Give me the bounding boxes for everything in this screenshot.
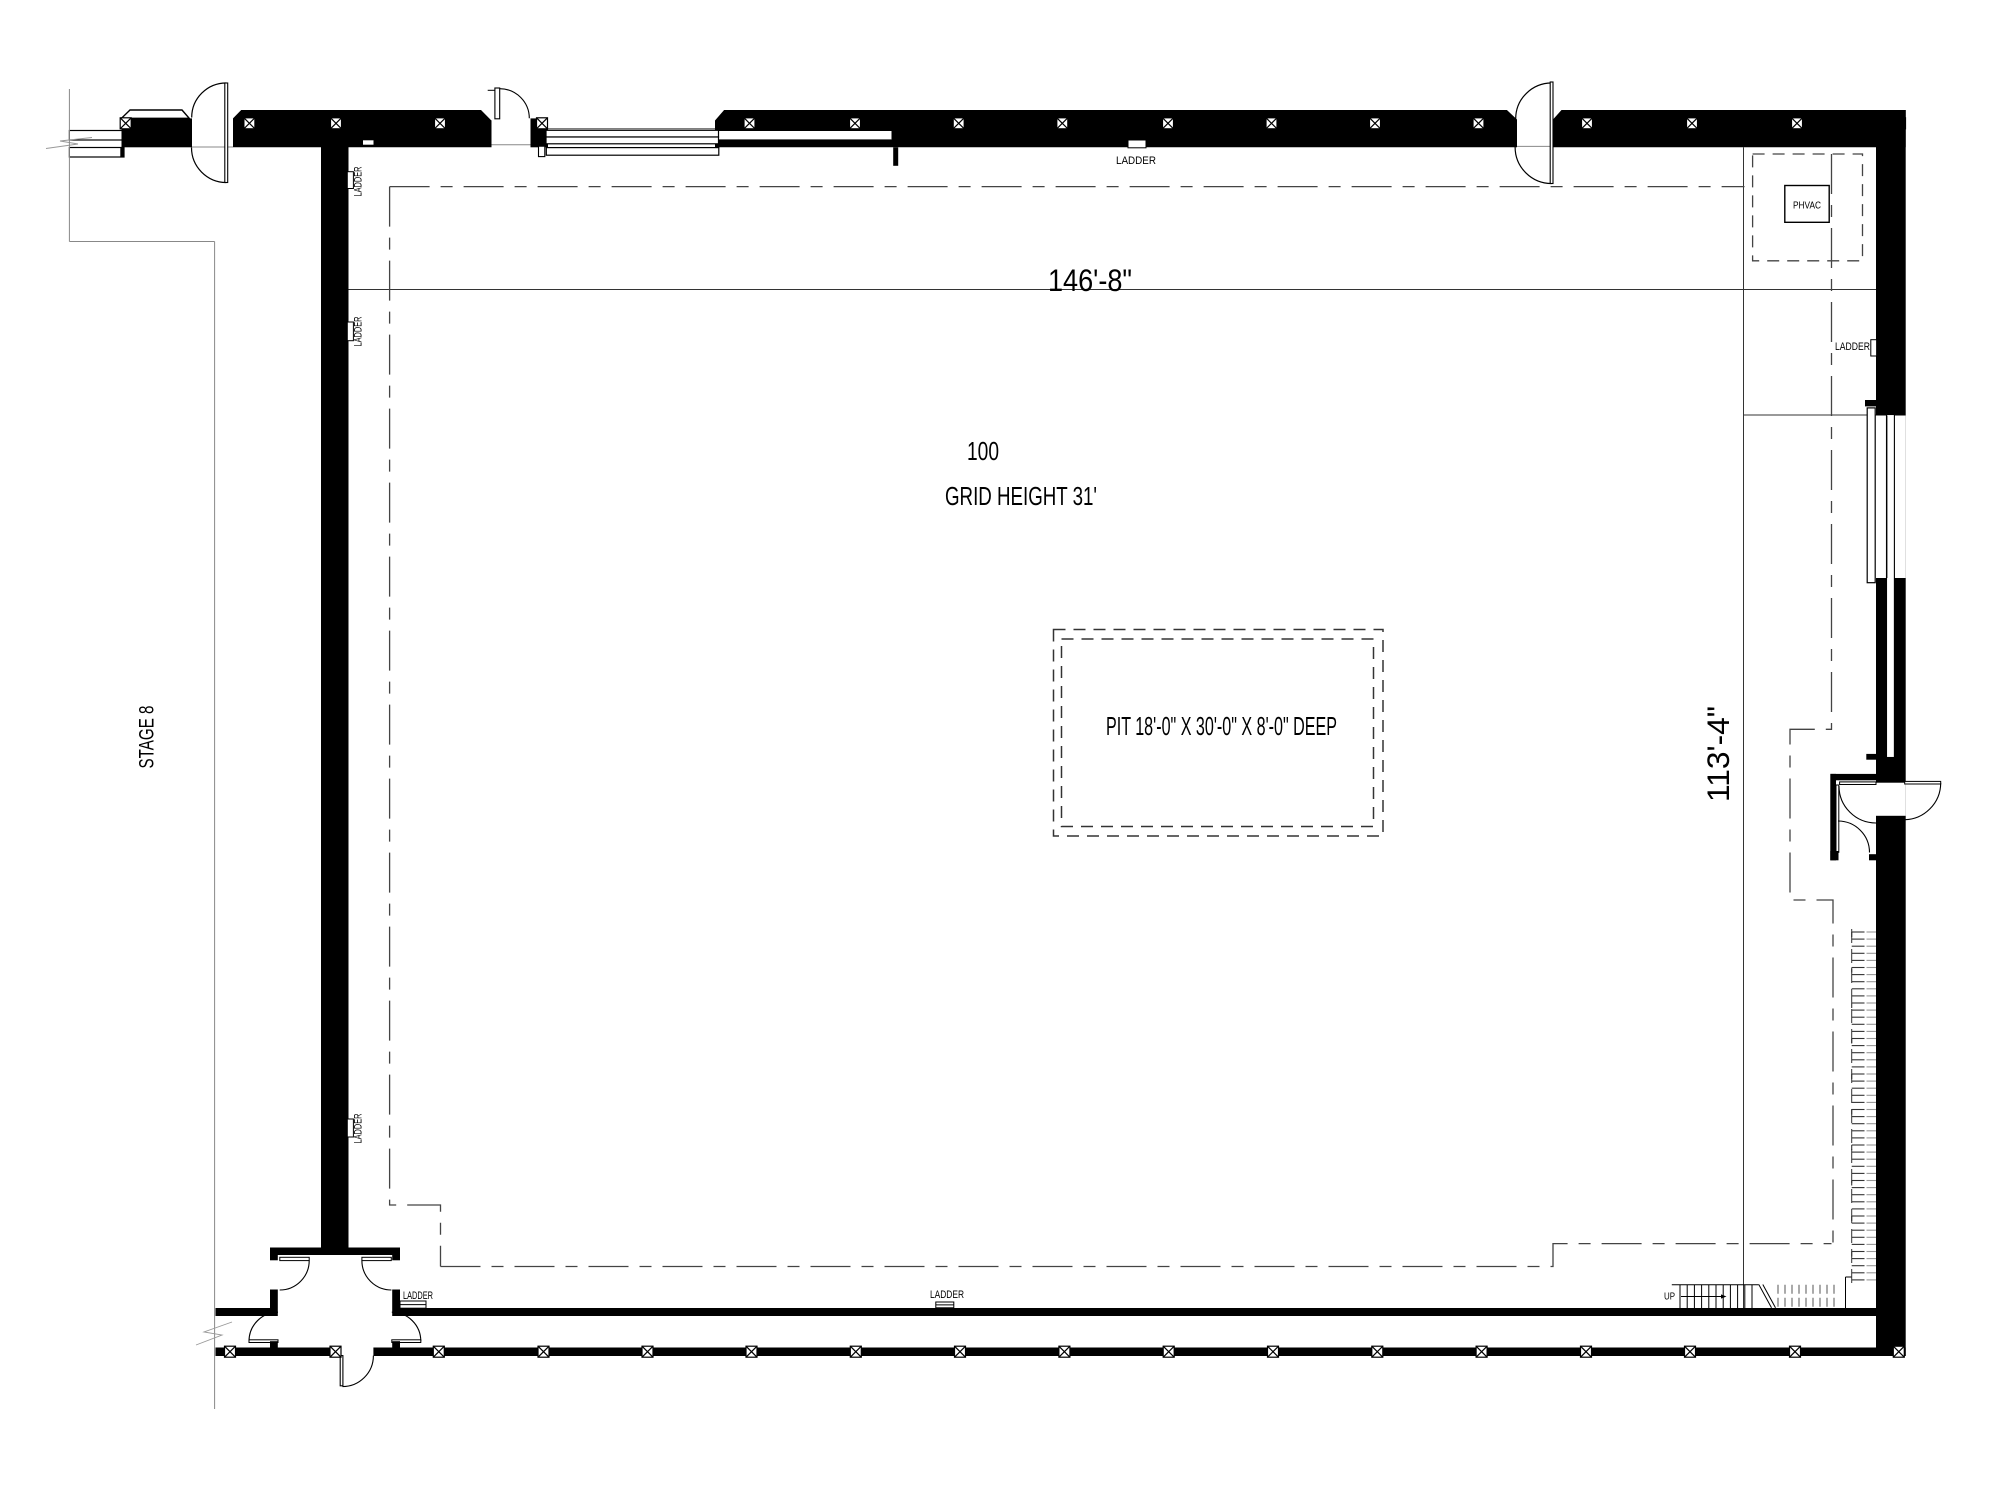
svg-text:LADDER: LADDER bbox=[930, 1289, 964, 1301]
svg-text:LADDER: LADDER bbox=[1835, 341, 1870, 353]
svg-text:LADDER: LADDER bbox=[353, 1113, 365, 1143]
svg-text:100: 100 bbox=[967, 436, 999, 466]
svg-text:146'-8": 146'-8" bbox=[1048, 262, 1132, 298]
svg-text:GRID HEIGHT 31': GRID HEIGHT 31' bbox=[945, 481, 1097, 511]
svg-text:LADDER: LADDER bbox=[353, 316, 365, 346]
svg-text:LADDER: LADDER bbox=[1116, 155, 1156, 167]
svg-text:UP: UP bbox=[1664, 1291, 1675, 1303]
svg-text:113'-4": 113'-4" bbox=[1700, 706, 1736, 802]
svg-text:PHVAC: PHVAC bbox=[1793, 201, 1821, 212]
svg-text:LADDER: LADDER bbox=[353, 166, 365, 196]
svg-text:PIT 18'-0" X 30'-0" X 8'-0" DE: PIT 18'-0" X 30'-0" X 8'-0" DEEP bbox=[1106, 711, 1337, 741]
svg-text:LADDER: LADDER bbox=[403, 1290, 433, 1302]
svg-text:STAGE 8: STAGE 8 bbox=[136, 706, 159, 769]
